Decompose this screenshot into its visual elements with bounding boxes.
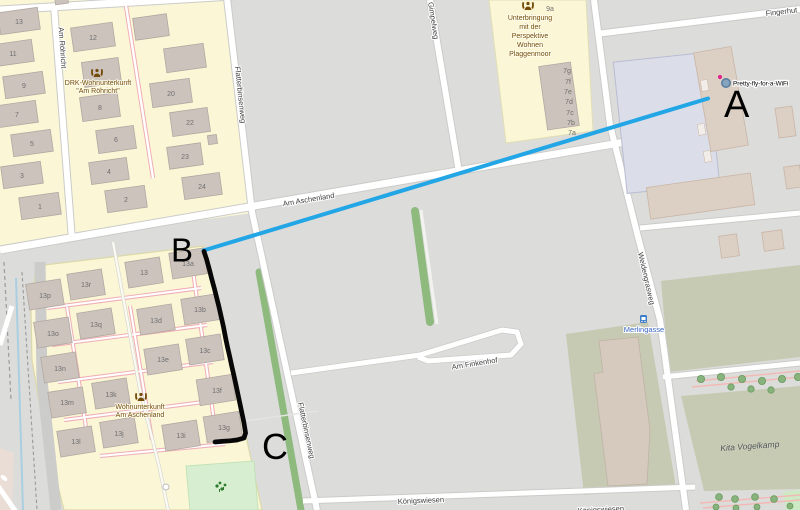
svg-text:13o: 13o [47, 331, 59, 338]
svg-text:7f: 7f [565, 79, 571, 86]
svg-text:Wohnunterkunft: Wohnunterkunft [115, 404, 164, 411]
svg-text:13i: 13i [176, 433, 186, 440]
svg-text:12: 12 [89, 35, 97, 42]
svg-text:13e: 13e [157, 357, 169, 364]
svg-text:7: 7 [15, 112, 19, 119]
svg-text:23: 23 [181, 154, 189, 161]
svg-text:9: 9 [22, 83, 26, 90]
svg-text:22: 22 [186, 120, 194, 127]
svg-text:C: C [262, 426, 288, 467]
svg-text:DRK-Wohnunterkunft: DRK-Wohnunterkunft [65, 80, 131, 87]
svg-text:13d: 13d [150, 318, 162, 325]
svg-text:Plaggenmoor: Plaggenmoor [509, 51, 551, 58]
svg-text:13j: 13j [114, 431, 124, 438]
svg-text:7g: 7g [563, 68, 571, 75]
svg-text:2: 2 [124, 197, 128, 204]
svg-text:B: B [171, 232, 193, 269]
svg-text:1: 1 [38, 204, 42, 211]
svg-text:7a: 7a [568, 130, 576, 137]
svg-text:13p: 13p [39, 293, 51, 300]
svg-text:8: 8 [98, 105, 102, 112]
svg-text:9a: 9a [546, 6, 554, 13]
svg-text:13b: 13b [194, 307, 206, 314]
svg-text:7e: 7e [564, 89, 572, 96]
svg-text:13: 13 [140, 270, 148, 277]
svg-text:20: 20 [167, 91, 175, 98]
svg-text:13r: 13r [81, 282, 92, 289]
svg-text:6: 6 [114, 137, 118, 144]
svg-text:13k: 13k [105, 392, 117, 399]
svg-text:13m: 13m [60, 400, 74, 407]
svg-text:mit der: mit der [519, 24, 541, 31]
svg-text:13l: 13l [71, 439, 81, 446]
svg-text:13n: 13n [54, 366, 66, 373]
svg-text:Wohnen: Wohnen [517, 42, 543, 49]
svg-text:7d: 7d [565, 99, 573, 106]
svg-text:A: A [724, 84, 750, 126]
svg-text:Merlingasse: Merlingasse [624, 325, 664, 334]
svg-text:5: 5 [30, 141, 34, 148]
svg-text:24: 24 [198, 184, 206, 191]
svg-text:3: 3 [20, 173, 24, 180]
svg-text:7c: 7c [566, 110, 574, 117]
svg-text:Perspektive: Perspektive [512, 33, 549, 40]
svg-text:7b: 7b [567, 120, 575, 127]
svg-text:Am Aschenland: Am Aschenland [116, 412, 165, 419]
svg-text:4: 4 [107, 169, 111, 176]
svg-text:13g: 13g [218, 425, 230, 432]
svg-text:Unterbringung: Unterbringung [508, 15, 552, 22]
svg-text:"Am Röhricht": "Am Röhricht" [76, 88, 120, 95]
svg-text:13c: 13c [199, 348, 211, 355]
svg-text:13f: 13f [212, 388, 222, 395]
svg-text:13: 13 [15, 19, 23, 26]
svg-text:13q: 13q [90, 322, 102, 329]
svg-text:11: 11 [9, 51, 16, 58]
